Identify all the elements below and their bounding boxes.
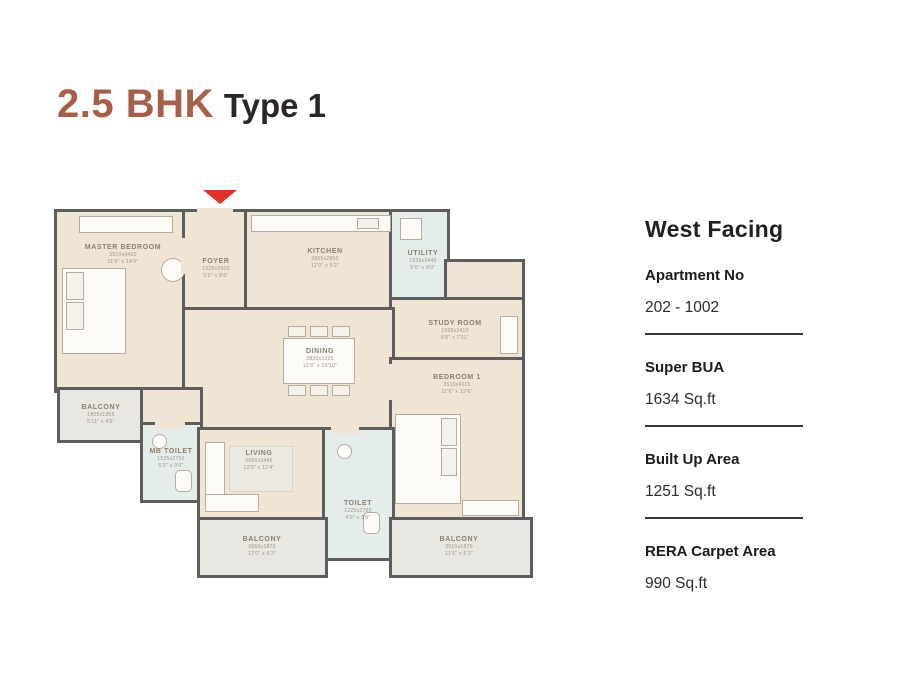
dining-chair bbox=[332, 385, 350, 396]
room-label-toilet: TOILET 1225x2750 4'0" x 9'0" bbox=[344, 499, 372, 521]
floorplan-brochure-page: { "title": { "accent": "2.5 BHK", "suffi… bbox=[0, 0, 900, 700]
room-label-balcony-bottom-middle: BALCONY 3660x1870 12'0" x 6'2" bbox=[243, 535, 282, 557]
apartment-no-value: 202 - 1002 bbox=[645, 299, 815, 317]
living-sofa-seat bbox=[205, 494, 259, 512]
master-bedroom-door-gap bbox=[181, 238, 189, 274]
dining-chair bbox=[288, 385, 306, 396]
rera-carpet-area-field: RERA Carpet Area 990 Sq.ft bbox=[645, 543, 815, 593]
title-accent: 2.5 BHK bbox=[57, 82, 214, 126]
utility-washer bbox=[400, 218, 422, 240]
room-label-master-bedroom: MASTER BEDROOM 3510x4420 11'6" x 14'6" bbox=[85, 243, 161, 265]
divider bbox=[645, 517, 803, 519]
built-up-area-label: Built Up Area bbox=[645, 451, 815, 468]
entry-door-gap bbox=[197, 208, 233, 216]
divider bbox=[645, 333, 803, 335]
bedroom-1-pillow bbox=[441, 418, 457, 446]
bedroom-1-pillow bbox=[441, 448, 457, 476]
toilet-basin bbox=[337, 444, 352, 459]
page-title: 2.5 BHKType 1 bbox=[57, 82, 326, 127]
room-label-study-room: STUDY ROOM 1825x2410 6'0" x 7'11" bbox=[428, 319, 481, 341]
room-passage bbox=[143, 390, 200, 425]
entry-arrow-icon bbox=[203, 190, 237, 204]
room-toilet bbox=[325, 430, 392, 558]
room-label-balcony-bottom-right: BALCONY 3510x1870 11'6" x 6'2" bbox=[440, 535, 479, 557]
master-bed-pillow bbox=[66, 302, 84, 330]
bedroom-1-wardrobe bbox=[462, 500, 519, 516]
dining-chair bbox=[288, 326, 306, 337]
rera-carpet-area-value: 990 Sq.ft bbox=[645, 575, 815, 593]
super-bua-value: 1634 Sq.ft bbox=[645, 391, 815, 409]
dining-chair bbox=[310, 385, 328, 396]
super-bua-field: Super BUA 1634 Sq.ft bbox=[645, 359, 815, 427]
apartment-no-label: Apartment No bbox=[645, 267, 815, 284]
bedroom-1-door-gap bbox=[388, 364, 396, 400]
built-up-area-field: Built Up Area 1251 Sq.ft bbox=[645, 451, 815, 519]
room-label-balcony-left: BALCONY 1805x1365 5'11" x 4'6" bbox=[82, 403, 121, 425]
apartment-no-field: Apartment No 202 - 1002 bbox=[645, 267, 815, 335]
master-wardrobe bbox=[79, 216, 173, 233]
room-label-kitchen: KITCHEN 3665x2800 12'0" x 9'2" bbox=[307, 247, 342, 269]
divider bbox=[645, 425, 803, 427]
title-suffix: Type 1 bbox=[224, 87, 326, 124]
super-bua-label: Super BUA bbox=[645, 359, 815, 376]
room-study-upper bbox=[447, 262, 522, 300]
living-sofa bbox=[205, 442, 225, 498]
dining-chair bbox=[332, 326, 350, 337]
room-label-living: LIVING 3660x3445 12'0" x 11'4" bbox=[244, 449, 275, 471]
info-panel: West Facing Apartment No 202 - 1002 Supe… bbox=[645, 216, 815, 609]
room-label-utility: UTILITY 1535x2440 5'0" x 8'0" bbox=[408, 249, 439, 271]
master-bed-pillow bbox=[66, 272, 84, 300]
built-up-area-value: 1251 Sq.ft bbox=[645, 483, 815, 501]
room-label-bedroom-1: BEDROOM 1 3510x4115 11'6" x 13'6" bbox=[433, 373, 481, 395]
toilet-door-gap bbox=[331, 426, 359, 434]
mb-toilet-door-gap bbox=[155, 421, 185, 429]
floor-plan: MASTER BEDROOM 3510x4420 11'6" x 14'6" F… bbox=[57, 212, 530, 580]
facing-heading: West Facing bbox=[645, 216, 815, 243]
room-label-foyer: FOYER 1520x2600 5'0" x 8'6" bbox=[202, 257, 229, 279]
room-label-mb-toilet: MB TOILET 1525x2750 5'0" x 9'0" bbox=[150, 447, 193, 469]
study-desk bbox=[500, 316, 518, 354]
kitchen-sink bbox=[357, 218, 379, 229]
dining-chair bbox=[310, 326, 328, 337]
mb-toilet-wc bbox=[175, 470, 192, 492]
room-label-dining: DINING 3820x3295 12'6" x 10'10" bbox=[303, 347, 337, 369]
rera-carpet-area-label: RERA Carpet Area bbox=[645, 543, 815, 560]
